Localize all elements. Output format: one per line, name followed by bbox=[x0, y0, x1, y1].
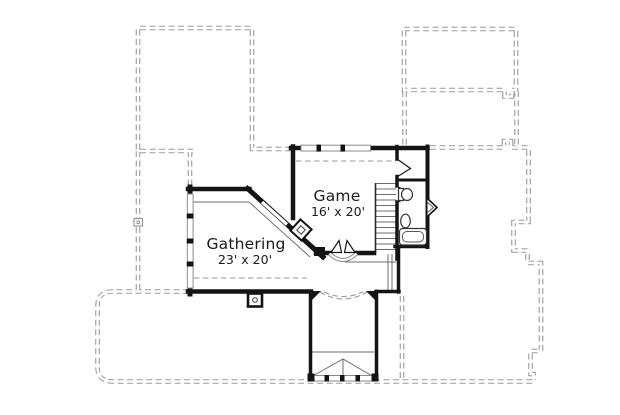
sink-icon bbox=[401, 214, 411, 228]
gathering-window-mullion bbox=[187, 214, 194, 219]
bathtub-icon bbox=[400, 229, 427, 246]
game-room-label: Game bbox=[314, 187, 361, 205]
game-room-dimensions: 16' x 20' bbox=[311, 204, 365, 219]
roof-marker bbox=[134, 219, 143, 227]
floor-plan-canvas: Game 16' x 20' Gathering 23' x 20' bbox=[0, 0, 620, 415]
column-box bbox=[248, 294, 262, 307]
toilet-icon bbox=[402, 189, 413, 201]
floor-plan: Game 16' x 20' Gathering 23' x 20' bbox=[0, 0, 620, 415]
gathering-room-dimensions: 23' x 20' bbox=[218, 252, 272, 267]
game-window-mullion bbox=[317, 145, 322, 152]
gathering-room-label: Gathering bbox=[206, 235, 285, 253]
tower-window-mullion bbox=[325, 375, 330, 382]
game-window-band bbox=[301, 145, 371, 151]
